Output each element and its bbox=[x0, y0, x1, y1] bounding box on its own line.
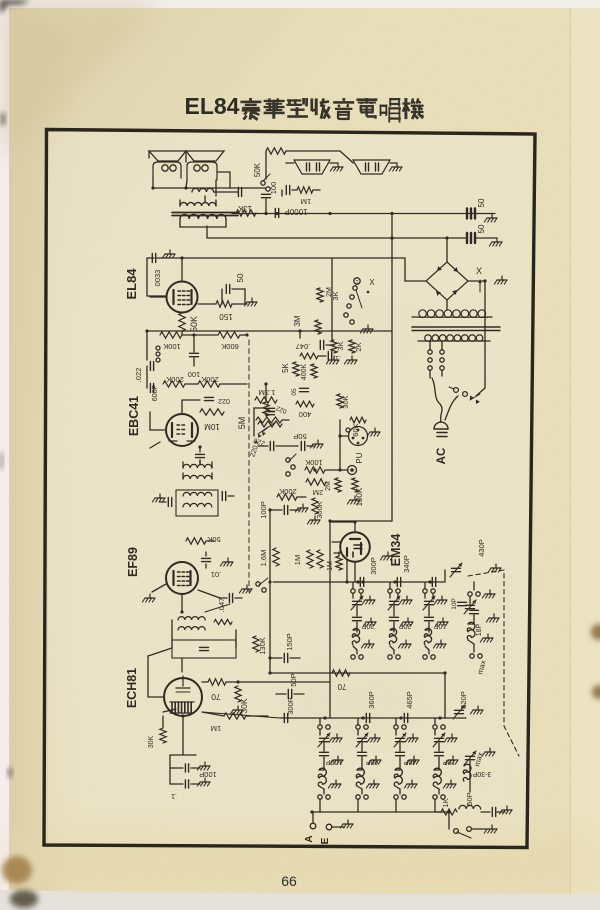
svg-text:200K: 200K bbox=[201, 375, 219, 384]
svg-text:150: 150 bbox=[219, 312, 233, 321]
svg-text:30K: 30K bbox=[148, 735, 155, 748]
svg-text:3-30P: 3-30P bbox=[472, 770, 491, 777]
svg-text:05: 05 bbox=[291, 388, 298, 396]
svg-text:100K: 100K bbox=[355, 487, 364, 506]
svg-text:50K: 50K bbox=[189, 316, 199, 332]
svg-text:1M: 1M bbox=[293, 555, 302, 565]
svg-text:1.6M: 1.6M bbox=[259, 550, 268, 567]
svg-text:1M: 1M bbox=[327, 561, 334, 571]
svg-text:2M: 2M bbox=[313, 488, 323, 497]
svg-text:.01: .01 bbox=[211, 570, 221, 579]
svg-text:.022: .022 bbox=[134, 368, 143, 383]
svg-text:1M: 1M bbox=[211, 724, 221, 733]
svg-text:EBC41: EBC41 bbox=[127, 396, 141, 436]
svg-text:EL84: EL84 bbox=[185, 93, 240, 119]
svg-text:5K: 5K bbox=[281, 362, 290, 372]
svg-text:50K: 50K bbox=[207, 535, 220, 544]
svg-text:0033: 0033 bbox=[153, 270, 162, 287]
svg-text:2M: 2M bbox=[325, 481, 332, 491]
svg-text:100: 100 bbox=[269, 182, 278, 195]
svg-text:50P: 50P bbox=[293, 432, 306, 441]
svg-text:1K: 1K bbox=[441, 798, 450, 807]
svg-text:PU: PU bbox=[355, 452, 364, 463]
svg-text:200K: 200K bbox=[166, 375, 184, 384]
svg-text:70: 70 bbox=[211, 692, 221, 702]
svg-text:13K: 13K bbox=[237, 204, 252, 213]
svg-text:30K: 30K bbox=[341, 395, 350, 408]
svg-text:E: E bbox=[320, 837, 331, 844]
svg-text:100: 100 bbox=[188, 370, 201, 379]
svg-text:.1: .1 bbox=[171, 792, 177, 799]
svg-text:3K: 3K bbox=[331, 291, 340, 300]
svg-text:430P: 430P bbox=[477, 539, 486, 557]
svg-text:465P: 465P bbox=[405, 691, 414, 709]
svg-text:50: 50 bbox=[477, 198, 486, 207]
svg-text:3M: 3M bbox=[293, 315, 302, 326]
svg-text:50K: 50K bbox=[253, 162, 262, 177]
svg-text:30K: 30K bbox=[239, 698, 249, 713]
svg-text:400K: 400K bbox=[301, 364, 308, 381]
svg-text:10P: 10P bbox=[451, 598, 458, 610]
svg-text:150P: 150P bbox=[285, 633, 294, 651]
svg-text:1M: 1M bbox=[301, 197, 311, 206]
svg-text:1.3M: 1.3M bbox=[259, 388, 276, 397]
svg-text:100K: 100K bbox=[305, 458, 323, 467]
svg-text:360P: 360P bbox=[367, 691, 376, 709]
svg-text:022: 022 bbox=[218, 397, 230, 404]
svg-text:300P: 300P bbox=[369, 557, 378, 575]
svg-text:X: X bbox=[369, 278, 375, 287]
svg-text:66: 66 bbox=[281, 873, 297, 889]
svg-text:.047: .047 bbox=[217, 598, 226, 613]
svg-text:EL84: EL84 bbox=[124, 268, 139, 300]
svg-text:50: 50 bbox=[236, 273, 245, 282]
svg-text:18P: 18P bbox=[476, 623, 483, 636]
svg-text:2K: 2K bbox=[354, 342, 363, 351]
svg-text:5M: 5M bbox=[237, 417, 247, 430]
svg-text:50P: 50P bbox=[289, 673, 298, 686]
svg-text:200K: 200K bbox=[279, 487, 297, 496]
svg-text:100K: 100K bbox=[163, 342, 181, 351]
svg-text:50P: 50P bbox=[465, 792, 474, 805]
svg-text:130K: 130K bbox=[258, 637, 267, 655]
svg-text:.047: .047 bbox=[296, 342, 311, 351]
svg-text:ECH81: ECH81 bbox=[125, 668, 139, 708]
svg-text:520P: 520P bbox=[459, 691, 468, 709]
svg-text:340P: 340P bbox=[402, 555, 411, 573]
svg-text:X: X bbox=[476, 266, 482, 276]
svg-text:50: 50 bbox=[477, 224, 486, 233]
svg-text:EF89: EF89 bbox=[126, 547, 140, 577]
svg-text:300K: 300K bbox=[315, 501, 324, 519]
svg-text:100P: 100P bbox=[259, 501, 268, 519]
svg-text:600K: 600K bbox=[221, 342, 239, 351]
svg-text:3K: 3K bbox=[336, 341, 345, 350]
svg-text:100P: 100P bbox=[199, 770, 217, 779]
svg-text:70: 70 bbox=[337, 682, 346, 691]
svg-text:1000P: 1000P bbox=[284, 207, 307, 216]
svg-text:10M: 10M bbox=[204, 422, 220, 431]
svg-text:A: A bbox=[304, 835, 315, 842]
svg-text:T: T bbox=[355, 280, 358, 286]
svg-text:400: 400 bbox=[299, 410, 312, 419]
svg-text:AC: AC bbox=[436, 448, 448, 465]
svg-text:300P: 300P bbox=[286, 697, 295, 715]
svg-text:EM34: EM34 bbox=[389, 534, 403, 567]
svg-text:600P: 600P bbox=[152, 385, 159, 402]
